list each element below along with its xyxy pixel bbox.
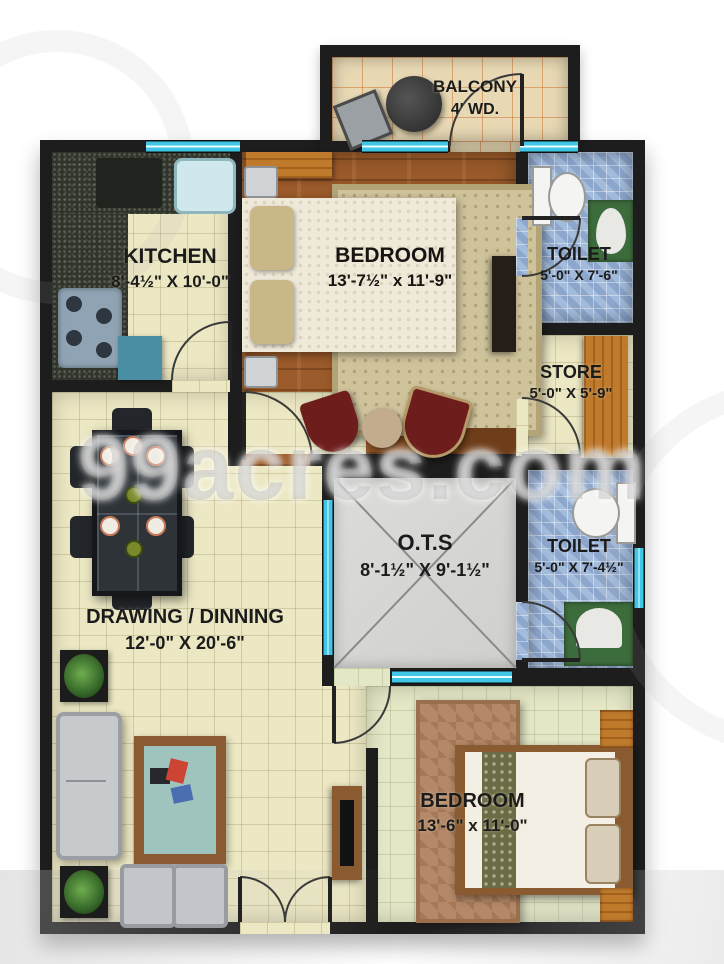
room-dims: 13'-6" x 11'-0" [380, 815, 565, 838]
room-dims: 5'-0" X 7'-6" [526, 266, 632, 285]
door-arc-store [522, 398, 580, 456]
room-name: DRAWING / DINNING [70, 604, 300, 631]
door-arc-bedroom-bottom [334, 686, 390, 743]
label-ots: O.T.S 8'-1½" X 9'-1½" [335, 528, 515, 582]
door-arcs-layer [0, 0, 724, 964]
room-dims: 5'-0" X 5'-9" [520, 384, 622, 404]
label-balcony: BALCONY 4' WD. [400, 76, 550, 121]
room-name: STORE [520, 360, 622, 384]
room-name: BEDROOM [380, 788, 565, 815]
label-drawing: DRAWING / DINNING 12'-0" X 20'-6" [70, 604, 300, 655]
room-dims: 8'-1½" X 9'-1½" [335, 558, 515, 582]
room-dims: 12'-0" X 20'-6" [70, 631, 300, 655]
label-toilet-top: TOILET 5'-0" X 7'-6" [526, 242, 632, 285]
label-bedroom-bottom: BEDROOM 13'-6" x 11'-0" [380, 788, 565, 838]
room-dims: 8'-4½" X 10'-0" [95, 271, 245, 294]
door-arc-toilet-mid [522, 602, 580, 660]
door-arc-bedroom-top [244, 392, 312, 460]
door-arc-entrance-right [285, 877, 330, 922]
room-dims: 5'-0" X 7'-4½" [526, 558, 632, 577]
label-store: STORE 5'-0" X 5'-9" [520, 360, 622, 405]
room-name: BALCONY [400, 76, 550, 99]
room-name: KITCHEN [95, 243, 245, 271]
room-name: TOILET [526, 534, 632, 558]
room-name: O.T.S [335, 528, 515, 558]
label-toilet-mid: TOILET 5'-0" X 7'-4½" [526, 534, 632, 577]
label-kitchen: KITCHEN 8'-4½" X 10'-0" [95, 243, 245, 294]
door-arc-kitchen [172, 322, 230, 380]
floor-plan: BALCONY 4' WD. KITCHEN 8'-4½" X 10'-0" B… [0, 0, 724, 964]
room-name: TOILET [526, 242, 632, 266]
room-dims: 4' WD. [400, 99, 550, 121]
label-bedroom-top: BEDROOM 13'-7½" x 11'-9" [300, 242, 480, 293]
door-arc-entrance-left [240, 877, 285, 922]
room-dims: 13'-7½" x 11'-9" [300, 270, 480, 293]
room-name: BEDROOM [300, 242, 480, 270]
